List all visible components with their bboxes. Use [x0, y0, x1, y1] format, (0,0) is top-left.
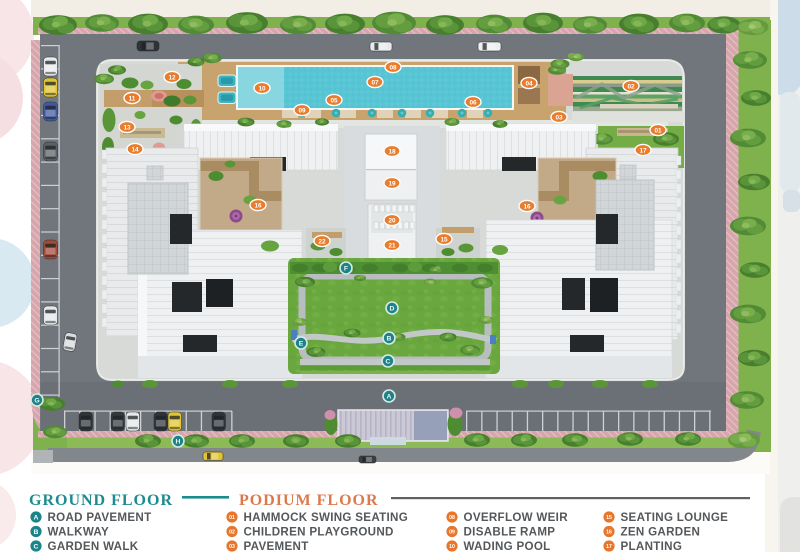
svg-text:16: 16	[523, 203, 531, 210]
svg-text:H: H	[176, 439, 181, 446]
svg-text:OVERFLOW WEIR: OVERFLOW WEIR	[464, 511, 569, 524]
svg-text:20: 20	[388, 217, 396, 224]
svg-text:ZEN GARDEN: ZEN GARDEN	[621, 526, 701, 539]
svg-text:17: 17	[606, 544, 612, 550]
svg-text:ROAD PAVEMENT: ROAD PAVEMENT	[48, 511, 152, 524]
svg-text:DISABLE RAMP: DISABLE RAMP	[464, 526, 556, 539]
svg-text:06: 06	[469, 99, 477, 106]
svg-text:01: 01	[229, 515, 235, 521]
svg-text:12: 12	[168, 74, 176, 81]
svg-text:09: 09	[449, 529, 455, 535]
svg-text:C: C	[386, 359, 391, 366]
svg-text:C: C	[34, 543, 39, 550]
svg-text:04: 04	[525, 80, 533, 87]
svg-text:08: 08	[449, 515, 455, 521]
svg-text:22: 22	[318, 238, 326, 245]
svg-text:E: E	[299, 341, 304, 348]
svg-text:WALKWAY: WALKWAY	[48, 526, 110, 539]
svg-text:16: 16	[254, 202, 262, 209]
svg-text:05: 05	[330, 97, 338, 104]
svg-text:19: 19	[388, 180, 396, 187]
svg-text:PODIUM FLOOR: PODIUM FLOOR	[239, 492, 379, 509]
svg-text:14: 14	[131, 146, 139, 153]
svg-text:PAVEMENT: PAVEMENT	[244, 540, 309, 552]
svg-text:15: 15	[606, 515, 612, 521]
svg-text:F: F	[344, 266, 348, 273]
svg-text:B: B	[387, 336, 392, 343]
svg-text:G: G	[34, 398, 39, 405]
svg-text:03: 03	[229, 544, 235, 550]
svg-text:10: 10	[449, 544, 455, 550]
svg-text:08: 08	[389, 64, 397, 71]
svg-text:GARDEN WALK: GARDEN WALK	[48, 540, 139, 552]
svg-text:03: 03	[555, 114, 563, 121]
svg-text:17: 17	[639, 147, 647, 154]
svg-text:21: 21	[388, 242, 396, 249]
svg-text:01: 01	[654, 127, 662, 134]
svg-text:SEATING LOUNGE: SEATING LOUNGE	[621, 511, 729, 524]
svg-text:PLANTING: PLANTING	[621, 540, 683, 552]
svg-text:A: A	[34, 514, 39, 521]
svg-text:09: 09	[298, 107, 306, 114]
svg-text:11: 11	[129, 95, 136, 102]
svg-text:13: 13	[123, 124, 131, 131]
svg-text:02: 02	[229, 529, 235, 535]
svg-text:B: B	[34, 529, 39, 536]
svg-text:18: 18	[388, 148, 396, 155]
svg-text:GROUND FLOOR: GROUND FLOOR	[29, 492, 173, 509]
svg-text:16: 16	[606, 529, 612, 535]
svg-text:02: 02	[627, 83, 635, 90]
svg-text:07: 07	[371, 79, 379, 86]
svg-text:A: A	[387, 394, 392, 401]
svg-text:HAMMOCK SWING SEATING: HAMMOCK SWING SEATING	[244, 511, 409, 524]
svg-text:CHILDREN PLAYGROUND: CHILDREN PLAYGROUND	[244, 526, 394, 539]
svg-text:WADING POOL: WADING POOL	[464, 540, 551, 552]
svg-text:D: D	[390, 306, 395, 313]
svg-text:15: 15	[440, 236, 448, 243]
svg-text:10: 10	[258, 85, 266, 92]
